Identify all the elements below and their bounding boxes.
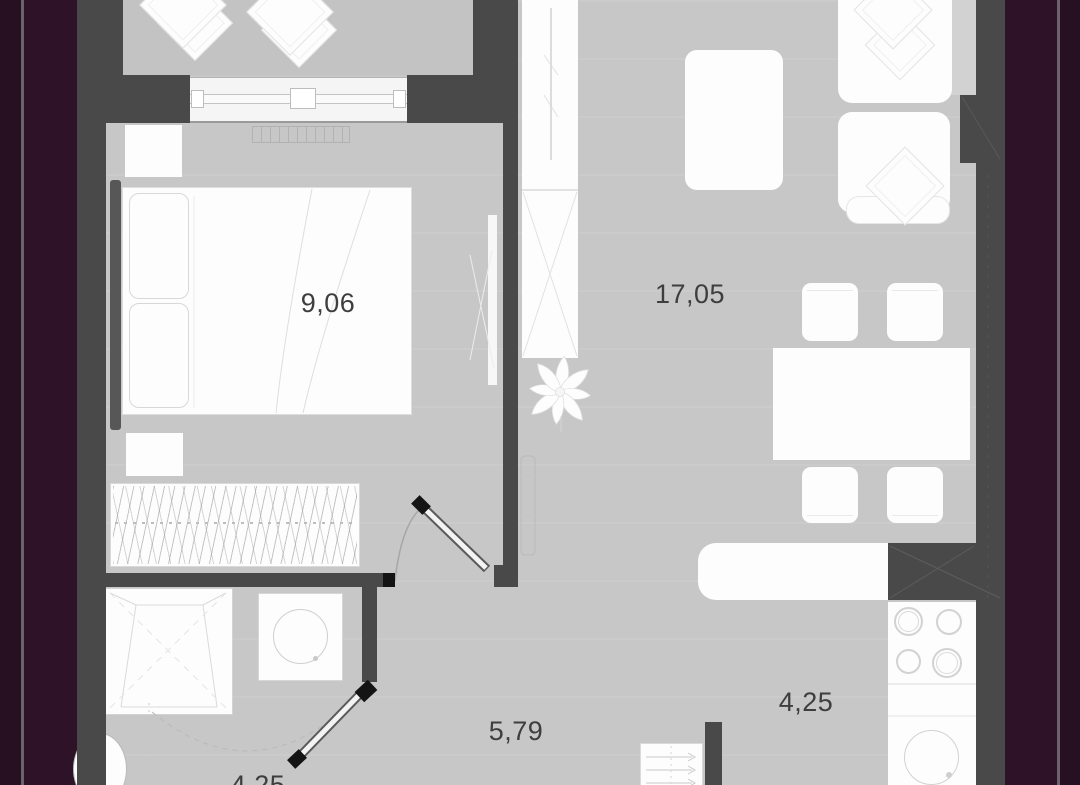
west-wall <box>77 123 106 785</box>
washer-dot-icon <box>313 656 318 661</box>
kitchen-area-label: 4,25 <box>751 687 861 717</box>
counter-divider-1 <box>888 683 976 685</box>
stove-burner-front-left-icon <box>896 649 921 674</box>
bedroom-window <box>190 77 407 123</box>
left-frame-band <box>24 0 77 785</box>
stove-burner-back-right-icon <box>936 609 962 635</box>
chair-bottom-right <box>887 467 943 523</box>
bed-pillow-1 <box>129 193 189 299</box>
hallway-area-label: 5,79 <box>461 716 571 746</box>
sofa-side-strip <box>950 0 976 95</box>
hanger-rail-icon <box>115 522 355 524</box>
right-frame-outer <box>1060 0 1080 785</box>
bedroom-south-wall-right <box>494 565 518 587</box>
hall-closet <box>522 0 578 358</box>
window-post-left-icon <box>191 90 204 108</box>
bathroom-partition-wall <box>362 587 377 682</box>
closet-divider <box>522 189 578 191</box>
east-wall-pilaster <box>960 95 977 163</box>
chair-bottom-left <box>802 467 858 523</box>
bedroom-south-wall <box>106 573 392 587</box>
bedroom-east-wall <box>503 123 518 585</box>
stove-burner-back-left-icon <box>894 607 923 636</box>
left-frame-outer <box>0 0 21 785</box>
window-right-pier <box>407 75 518 123</box>
window-left-pier <box>77 75 190 123</box>
kitchen-counter <box>698 543 888 600</box>
floor-plan-viewport: 9,06 17,05 4,25 5,79 4,25 <box>0 0 1080 785</box>
counter-divider-2 <box>888 715 976 717</box>
bed-headboard-panel <box>110 180 121 430</box>
balcony-west-wall <box>77 0 123 75</box>
entry-partition-stub <box>705 722 722 785</box>
hanger-lines-icon <box>113 486 357 564</box>
nightstand-bottom <box>126 433 183 476</box>
tv-stand <box>685 50 783 190</box>
living-room-area-label: 17,05 <box>635 279 745 309</box>
bedroom-radiator <box>252 126 350 143</box>
bathroom-area-label: 4,25 <box>203 770 313 785</box>
right-frame-band <box>1005 0 1057 785</box>
bed-pillow-2 <box>129 303 189 408</box>
east-wall <box>976 0 1005 785</box>
sink-tap-icon <box>946 772 952 778</box>
shoe-rack <box>640 743 703 785</box>
chair-top-right <box>887 283 943 341</box>
nightstand-top <box>125 125 182 177</box>
radiator-cells <box>252 126 350 143</box>
balcony-east-wall <box>473 0 518 75</box>
window-handle-icon <box>290 88 316 109</box>
window-post-right-icon <box>393 90 406 108</box>
chair-top-left <box>802 283 858 341</box>
wall-mirror <box>488 215 497 385</box>
bedroom-area-label: 9,06 <box>273 288 383 318</box>
washer-drum-icon <box>273 609 328 664</box>
ventilation-shaft <box>888 543 976 600</box>
dining-table <box>773 348 970 460</box>
shower-tray <box>105 588 233 715</box>
wardrobe-with-hangers <box>110 483 360 567</box>
stove-burner-front-right-icon <box>932 648 962 678</box>
